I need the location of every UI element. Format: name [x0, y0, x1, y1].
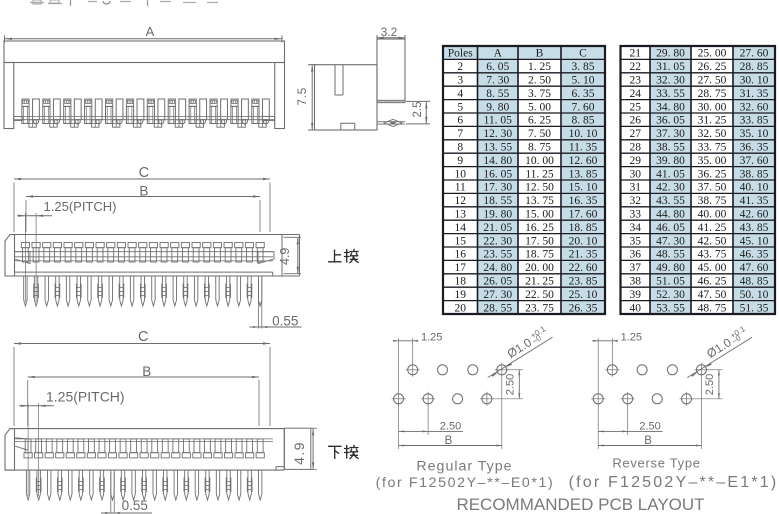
svg-text:14: 14 [455, 222, 467, 234]
svg-text:32. 60: 32. 60 [740, 101, 769, 113]
svg-text:13. 75: 13. 75 [525, 195, 554, 207]
svg-text:16. 35: 16. 35 [569, 195, 598, 207]
svg-text:42. 50: 42. 50 [698, 235, 727, 247]
svg-text:B: B [445, 435, 453, 447]
svg-text:28. 55: 28. 55 [483, 302, 512, 314]
svg-text:51. 35: 51. 35 [740, 302, 769, 314]
svg-text:4.9: 4.9 [278, 248, 292, 265]
svg-text:1. 25: 1. 25 [528, 61, 551, 73]
svg-text:45. 00: 45. 00 [698, 262, 727, 274]
svg-text:23: 23 [630, 75, 642, 87]
svg-text:1.25(PITCH): 1.25(PITCH) [46, 389, 125, 405]
svg-text:C: C [579, 48, 587, 60]
svg-text:42. 30: 42. 30 [656, 182, 685, 194]
svg-text:17. 60: 17. 60 [569, 209, 598, 221]
svg-text:21: 21 [630, 48, 642, 60]
svg-text:47. 60: 47. 60 [740, 262, 769, 274]
svg-text:7: 7 [457, 128, 463, 140]
svg-text:11. 25: 11. 25 [525, 168, 554, 180]
svg-text:Regular Type: Regular Type [416, 459, 512, 475]
svg-text:46. 05: 46. 05 [656, 222, 685, 234]
svg-text:8. 55: 8. 55 [486, 88, 509, 100]
svg-text:4: 4 [457, 88, 463, 100]
svg-text:23. 75: 23. 75 [525, 302, 554, 314]
svg-text:10. 00: 10. 00 [525, 155, 554, 167]
svg-text:17. 30: 17. 30 [483, 182, 512, 194]
svg-text:27. 50: 27. 50 [698, 75, 727, 87]
svg-text:40. 10: 40. 10 [740, 182, 769, 194]
svg-text:47. 30: 47. 30 [656, 235, 685, 247]
svg-text:26. 25: 26. 25 [698, 61, 727, 73]
svg-text:2.50: 2.50 [639, 421, 660, 433]
svg-text:28. 85: 28. 85 [740, 61, 769, 73]
svg-text:2.50: 2.50 [440, 421, 461, 433]
svg-text:B: B [644, 435, 652, 447]
svg-text:18: 18 [455, 276, 467, 288]
svg-text:28: 28 [630, 142, 642, 154]
svg-text:50. 10: 50. 10 [740, 289, 769, 301]
svg-text:6. 35: 6. 35 [572, 88, 595, 100]
svg-text:23. 55: 23. 55 [483, 249, 512, 261]
svg-text:A: A [494, 48, 503, 60]
svg-text:10: 10 [455, 168, 467, 180]
svg-text:A: A [146, 24, 155, 39]
svg-text:30. 10: 30. 10 [740, 75, 769, 87]
svg-text:26. 35: 26. 35 [569, 302, 598, 314]
svg-text:48. 75: 48. 75 [698, 302, 727, 314]
svg-text:3. 75: 3. 75 [528, 88, 551, 100]
svg-text:Ø1.0: Ø1.0 [704, 335, 734, 361]
svg-text:53. 55: 53. 55 [656, 302, 685, 314]
svg-text:41. 35: 41. 35 [740, 195, 769, 207]
svg-text:3: 3 [457, 75, 463, 87]
svg-text:13: 13 [455, 209, 467, 221]
svg-text:32. 30: 32. 30 [656, 75, 685, 87]
svg-text:6: 6 [457, 115, 463, 127]
svg-text:11. 05: 11. 05 [484, 115, 513, 127]
svg-text:31. 35: 31. 35 [740, 88, 769, 100]
svg-text:37: 37 [630, 262, 642, 274]
svg-text:Poles: Poles [448, 48, 473, 60]
svg-text:47. 50: 47. 50 [698, 289, 727, 301]
svg-text:8. 75: 8. 75 [528, 142, 551, 154]
svg-text:25. 10: 25. 10 [569, 289, 598, 301]
svg-text:36. 35: 36. 35 [740, 142, 769, 154]
svg-text:38. 85: 38. 85 [740, 168, 769, 180]
svg-text:22. 50: 22. 50 [525, 289, 554, 301]
svg-text:46. 25: 46. 25 [698, 276, 727, 288]
svg-text:2.50: 2.50 [505, 374, 517, 395]
svg-text:8. 85: 8. 85 [572, 115, 595, 127]
svg-text:26: 26 [630, 115, 642, 127]
svg-text:6. 25: 6. 25 [528, 115, 551, 127]
svg-text:35: 35 [630, 235, 642, 247]
svg-text:12. 30: 12. 30 [483, 128, 512, 140]
svg-text:2.50: 2.50 [704, 374, 716, 395]
svg-text:31. 05: 31. 05 [656, 61, 685, 73]
svg-text:2.5: 2.5 [412, 102, 424, 118]
svg-text:49. 80: 49. 80 [656, 262, 685, 274]
svg-text:18. 75: 18. 75 [525, 249, 554, 261]
svg-text:RECOMMANDED PCB LAYOUT: RECOMMANDED PCB LAYOUT [456, 495, 704, 514]
svg-text:37. 60: 37. 60 [740, 155, 769, 167]
svg-text:41. 05: 41. 05 [656, 168, 685, 180]
svg-text:8: 8 [457, 142, 463, 154]
svg-text:7.5: 7.5 [297, 87, 309, 105]
svg-text:36. 25: 36. 25 [698, 168, 727, 180]
svg-text:12. 60: 12. 60 [569, 155, 598, 167]
svg-text:7. 30: 7. 30 [486, 75, 509, 87]
svg-text:29: 29 [630, 155, 642, 167]
svg-text:11. 35: 11. 35 [569, 142, 598, 154]
svg-text:30. 00: 30. 00 [698, 101, 727, 113]
svg-text:24. 80: 24. 80 [483, 262, 512, 274]
svg-text:23. 85: 23. 85 [569, 276, 598, 288]
svg-text:16. 05: 16. 05 [483, 168, 512, 180]
svg-text:36. 05: 36. 05 [656, 115, 685, 127]
svg-text:21. 05: 21. 05 [483, 222, 512, 234]
svg-text:48. 55: 48. 55 [656, 249, 685, 261]
svg-text:6. 05: 6. 05 [486, 61, 509, 73]
svg-text:48. 85: 48. 85 [740, 276, 769, 288]
svg-text:2: 2 [457, 61, 463, 73]
svg-text:5: 5 [457, 101, 463, 113]
svg-text:20. 10: 20. 10 [569, 235, 598, 247]
svg-text:Reverse Type: Reverse Type [612, 455, 700, 470]
svg-text:21. 25: 21. 25 [525, 276, 554, 288]
svg-text:29. 80: 29. 80 [656, 48, 685, 60]
svg-text:4.9: 4.9 [291, 441, 307, 465]
svg-text:16: 16 [455, 249, 467, 261]
svg-text:1.25: 1.25 [621, 331, 642, 343]
svg-text:11: 11 [455, 182, 466, 194]
svg-text:31: 31 [630, 182, 642, 194]
svg-text:38. 55: 38. 55 [656, 142, 685, 154]
svg-text:33. 75: 33. 75 [698, 142, 727, 154]
svg-text:33. 85: 33. 85 [740, 115, 769, 127]
svg-text:13. 55: 13. 55 [483, 142, 512, 154]
svg-text:7. 60: 7. 60 [572, 101, 595, 113]
svg-text:20. 00: 20. 00 [525, 262, 554, 274]
svg-text:37. 50: 37. 50 [698, 182, 727, 194]
svg-text:26. 05: 26. 05 [483, 276, 512, 288]
svg-text:43. 55: 43. 55 [656, 195, 685, 207]
svg-text:39. 80: 39. 80 [656, 155, 685, 167]
svg-text:38. 75: 38. 75 [698, 195, 727, 207]
svg-text:19. 80: 19. 80 [483, 209, 512, 221]
svg-text:51. 05: 51. 05 [656, 276, 685, 288]
svg-text:18. 85: 18. 85 [569, 222, 598, 234]
svg-text:(for F12502Y–**–E1*1): (for F12502Y–**–E1*1) [569, 474, 779, 491]
svg-text:43. 85: 43. 85 [740, 222, 769, 234]
svg-text:15. 10: 15. 10 [569, 182, 598, 194]
svg-text:9: 9 [457, 155, 463, 167]
svg-text:27. 60: 27. 60 [740, 48, 769, 60]
svg-text:24: 24 [630, 88, 642, 100]
svg-text:45. 10: 45. 10 [740, 235, 769, 247]
svg-text:1.25: 1.25 [421, 331, 442, 343]
svg-text:Ø1.0: Ø1.0 [505, 335, 535, 361]
svg-text:34. 80: 34. 80 [656, 101, 685, 113]
svg-text:27. 30: 27. 30 [483, 289, 512, 301]
svg-text:1.25(PITCH): 1.25(PITCH) [44, 199, 117, 214]
svg-text:9. 80: 9. 80 [486, 101, 509, 113]
svg-text:2. 50: 2. 50 [528, 75, 551, 87]
svg-text:20: 20 [455, 302, 467, 314]
svg-text:41. 25: 41. 25 [698, 222, 727, 234]
svg-text:44. 80: 44. 80 [656, 209, 685, 221]
svg-text:5. 10: 5. 10 [572, 75, 595, 87]
svg-text:12: 12 [455, 195, 467, 207]
svg-text:17. 50: 17. 50 [525, 235, 554, 247]
svg-text:40: 40 [630, 302, 642, 314]
svg-text:10. 10: 10. 10 [569, 128, 598, 140]
svg-text:0.55: 0.55 [272, 314, 298, 329]
svg-text:31. 25: 31. 25 [698, 115, 727, 127]
svg-text:42. 60: 42. 60 [740, 209, 769, 221]
svg-text:C: C [138, 329, 148, 345]
svg-text:35. 00: 35. 00 [698, 155, 727, 167]
svg-text:7. 50: 7. 50 [528, 128, 551, 140]
svg-text:52. 30: 52. 30 [656, 289, 685, 301]
svg-text:43. 75: 43. 75 [698, 249, 727, 261]
svg-text:35. 10: 35. 10 [740, 128, 769, 140]
svg-text:15. 00: 15. 00 [525, 209, 554, 221]
svg-text:13. 85: 13. 85 [569, 168, 598, 180]
svg-text:32: 32 [630, 195, 642, 207]
svg-text:25. 00: 25. 00 [698, 48, 727, 60]
svg-text:25: 25 [630, 101, 642, 113]
svg-text:38: 38 [630, 276, 642, 288]
svg-text:18. 55: 18. 55 [483, 195, 512, 207]
svg-text:12. 50: 12. 50 [525, 182, 554, 194]
svg-text:B: B [536, 48, 544, 60]
svg-text:22. 30: 22. 30 [483, 235, 512, 247]
svg-text:16. 25: 16. 25 [525, 222, 554, 234]
svg-text:28. 75: 28. 75 [698, 88, 727, 100]
svg-text:17: 17 [455, 262, 467, 274]
svg-text:39: 39 [630, 289, 642, 301]
svg-text:3. 85: 3. 85 [572, 61, 595, 73]
svg-text:19: 19 [455, 289, 467, 301]
svg-text:22. 60: 22. 60 [569, 262, 598, 274]
svg-text:36: 36 [630, 249, 642, 261]
svg-text:0.55: 0.55 [122, 498, 148, 513]
svg-text:37. 30: 37. 30 [656, 128, 685, 140]
svg-text:22: 22 [630, 61, 642, 73]
svg-text:14. 80: 14. 80 [483, 155, 512, 167]
svg-text:34: 34 [630, 222, 642, 234]
svg-text:40. 00: 40. 00 [698, 209, 727, 221]
svg-text:32. 50: 32. 50 [698, 128, 727, 140]
svg-text:5. 00: 5. 00 [528, 101, 551, 113]
svg-text:15: 15 [455, 235, 467, 247]
svg-text:27: 27 [630, 128, 642, 140]
svg-text:21. 35: 21. 35 [569, 249, 598, 261]
svg-text:33: 33 [630, 209, 642, 221]
svg-text:33. 55: 33. 55 [656, 88, 685, 100]
svg-text:(for F12502Y–**–E0*1): (for F12502Y–**–E0*1) [376, 475, 555, 491]
svg-text:30: 30 [630, 168, 642, 180]
svg-text:46. 35: 46. 35 [740, 249, 769, 261]
